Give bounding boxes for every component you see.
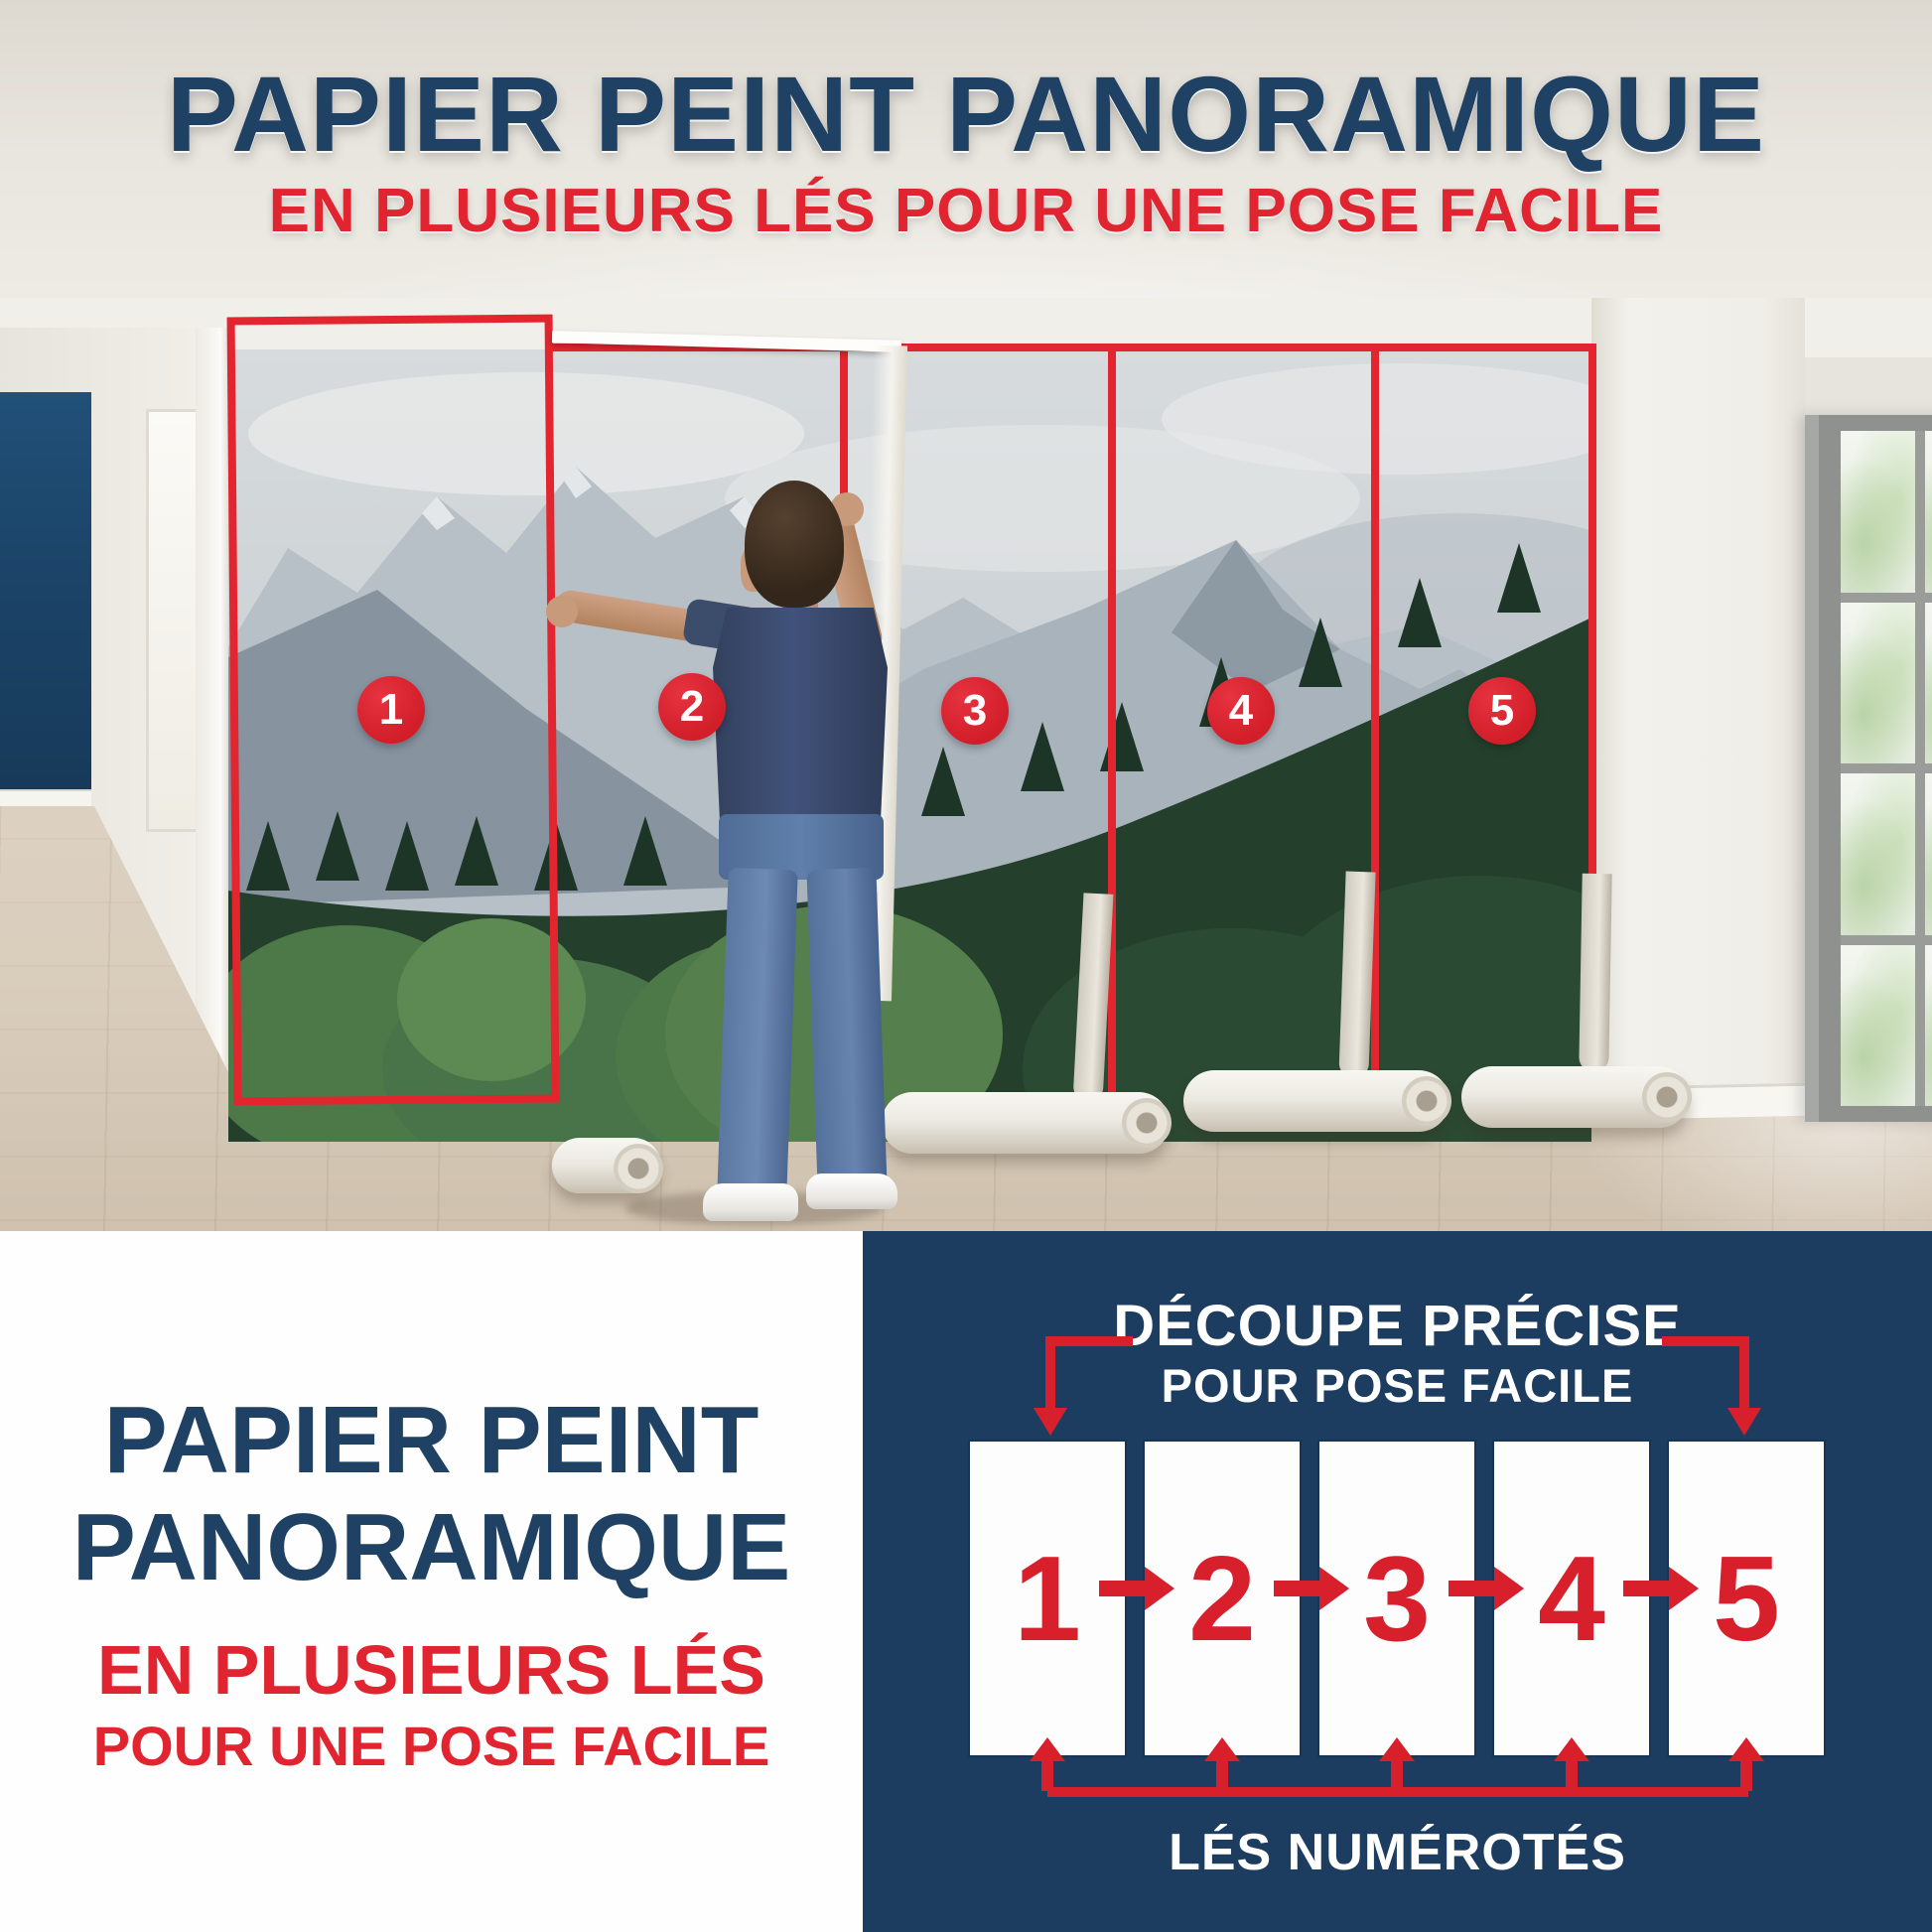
diagram-header-line2: POUR POSE FACILE xyxy=(863,1358,1932,1413)
right-wall xyxy=(1591,298,1805,1102)
down-arrow-icon xyxy=(1727,1408,1761,1436)
up-arrow-icon xyxy=(1030,1737,1065,1761)
bottom-subtitle-line2: POUR UNE POSE FACILE xyxy=(93,1718,769,1776)
window xyxy=(1805,415,1932,1122)
panel-marker-5: 5 xyxy=(1468,677,1536,745)
diagram-footer-label: LÉS NUMÉROTÉS xyxy=(863,1823,1932,1882)
bottom-subtitle-line1: EN PLUSIEURS LÉS xyxy=(97,1634,765,1708)
right-arrow-icon xyxy=(1274,1567,1349,1610)
diagram-header-line1: DÉCOUPE PRÉCISE xyxy=(863,1293,1932,1359)
wallpaper-infographic-poster: 1 2 3 4 5 PAPIER PEINT PANORAMIQUE EN PL… xyxy=(0,0,1932,1932)
installer-man xyxy=(536,477,913,1231)
wallpaper-roll xyxy=(882,1092,1170,1154)
navy-accent-wall xyxy=(0,392,91,789)
numbered-panels-diagram: DÉCOUPE PRÉCISE POUR POSE FACILE 1 2 3 4… xyxy=(863,1231,1932,1932)
doorway xyxy=(146,409,202,832)
left-bracket-arrow xyxy=(1045,1336,1133,1346)
installation-photo: 1 2 3 4 5 PAPIER PEINT PANORAMIQUE EN PL… xyxy=(0,0,1932,1231)
bottom-title-line2: PANORAMIQUE xyxy=(72,1494,791,1601)
right-arrow-icon xyxy=(1099,1567,1174,1610)
wallpaper-roll xyxy=(1461,1066,1690,1128)
panel-divider-line xyxy=(1108,344,1116,1098)
poster-subtitle: EN PLUSIEURS LÉS POUR UNE POSE FACILE xyxy=(0,176,1932,246)
wall-corner xyxy=(196,328,231,1082)
down-arrow-icon xyxy=(1034,1408,1067,1436)
up-arrow-icon xyxy=(1554,1737,1589,1761)
wallpaper-curl xyxy=(1579,874,1611,1072)
up-arrow-icon xyxy=(1204,1737,1240,1761)
headline-block: PAPIER PEINT PANORAMIQUE EN PLUSIEURS LÉ… xyxy=(0,58,1932,246)
bottom-left-text-panel: PAPIER PEINT PANORAMIQUE EN PLUSIEURS LÉ… xyxy=(0,1231,863,1932)
panel-marker-2: 2 xyxy=(658,673,726,741)
panel-marker-4: 4 xyxy=(1207,677,1275,745)
panel-marker-1: 1 xyxy=(357,676,425,744)
poster-title: PAPIER PEINT PANORAMIQUE xyxy=(0,58,1932,170)
right-arrow-icon xyxy=(1623,1567,1699,1610)
bottom-title-line1: PAPIER PEINT xyxy=(104,1387,759,1494)
wallpaper-roll xyxy=(1183,1070,1449,1132)
right-bracket-arrow xyxy=(1662,1336,1749,1346)
right-arrow-icon xyxy=(1449,1567,1524,1610)
window-panes xyxy=(1841,431,1932,1106)
installer-head xyxy=(745,481,844,608)
up-arrow-icon xyxy=(1728,1737,1764,1761)
up-arrow-icon xyxy=(1379,1737,1415,1761)
installer-tshirt xyxy=(713,608,888,822)
panel-marker-3: 3 xyxy=(941,677,1009,745)
